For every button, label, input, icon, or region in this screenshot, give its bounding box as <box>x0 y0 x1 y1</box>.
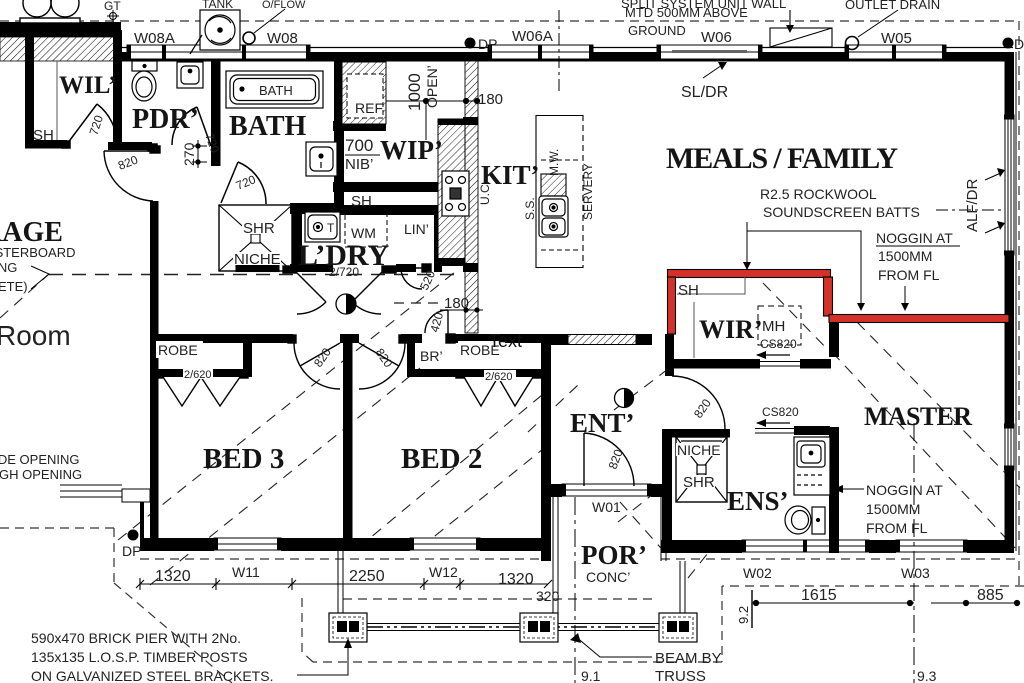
svg-text:135x135 L.O.S.P. TIMBER POS: 135x135 L.O.S.P. TIMBER POSTS <box>31 649 248 665</box>
svg-text:ON GALVANIZED STEEL BRACKET: ON GALVANIZED STEEL BRACKETS. <box>31 668 273 683</box>
svg-text:DP: DP <box>122 543 141 559</box>
svg-text:700: 700 <box>345 136 373 155</box>
svg-text:W08A: W08A <box>134 30 175 47</box>
svg-text:O/FLOW: O/FLOW <box>262 0 306 11</box>
svg-text:1000: 1000 <box>405 73 424 111</box>
svg-text:9.2: 9.2 <box>736 606 751 624</box>
svg-text:1615: 1615 <box>801 587 837 604</box>
svg-text:FROM FL: FROM FL <box>866 520 928 536</box>
svg-text:9.1: 9.1 <box>581 668 601 683</box>
svg-text:MASTER: MASTER <box>864 402 972 431</box>
svg-text:M.W.: M.W. <box>547 149 561 176</box>
svg-text:SHR: SHR <box>683 474 715 491</box>
svg-text:GARAGE: GARAGE <box>0 217 63 248</box>
svg-text:885: 885 <box>977 587 1004 604</box>
svg-text:PDR’: PDR’ <box>132 104 199 135</box>
svg-text:R2.5 ROCKWOOL: R2.5 ROCKWOOL <box>760 186 877 202</box>
svg-text:BED 3: BED 3 <box>203 443 284 475</box>
svg-text:WIL’: WIL’ <box>59 72 116 99</box>
svg-text:LIN’: LIN’ <box>404 221 429 237</box>
svg-text:W08: W08 <box>267 30 298 47</box>
svg-text:BED 2: BED 2 <box>401 443 482 475</box>
svg-text:BR’: BR’ <box>420 348 443 364</box>
svg-text:1320: 1320 <box>155 568 191 585</box>
svg-text:CONC’: CONC’ <box>586 569 630 585</box>
svg-text:W01: W01 <box>592 499 621 515</box>
svg-text:GROUND: GROUND <box>628 23 686 38</box>
svg-text:180: 180 <box>478 91 503 108</box>
svg-text:CS820: CS820 <box>760 337 797 351</box>
svg-text:WM: WM <box>351 225 376 241</box>
svg-text:CS820: CS820 <box>762 405 799 419</box>
svg-text:2/620: 2/620 <box>485 371 513 383</box>
svg-text:BATH: BATH <box>229 111 306 142</box>
svg-text:W05: W05 <box>881 30 912 47</box>
svg-text:REF: REF <box>355 100 383 116</box>
svg-text:TRUSS: TRUSS <box>655 668 706 683</box>
svg-text:NOGGIN AT: NOGGIN AT <box>876 230 953 246</box>
svg-text:TANK: TANK <box>202 0 233 11</box>
svg-text:ENT’: ENT’ <box>570 408 635 438</box>
svg-text:(CONCRETE): (CONCRETE) <box>0 279 28 294</box>
svg-text:LINING: LINING <box>0 260 17 275</box>
svg-text:180: 180 <box>444 295 469 312</box>
svg-text:2/720: 2/720 <box>329 265 359 279</box>
svg-text:W06: W06 <box>701 29 732 46</box>
svg-text:SH: SH <box>678 282 699 299</box>
svg-text:ENS’: ENS’ <box>727 486 789 516</box>
svg-text:2/620: 2/620 <box>184 369 212 381</box>
svg-text:MH: MH <box>762 318 785 335</box>
svg-text:U.C.: U.C. <box>478 181 492 205</box>
svg-text:SH: SH <box>351 193 372 210</box>
svg-text:NIB’: NIB’ <box>345 156 373 173</box>
svg-text:FROM FL: FROM FL <box>878 267 940 283</box>
svg-text:SL/DR: SL/DR <box>681 84 728 101</box>
svg-text:Text: Text <box>489 331 522 351</box>
svg-text:1320: 1320 <box>498 571 534 588</box>
svg-text:POR’: POR’ <box>581 540 647 570</box>
svg-text:BATH: BATH <box>259 83 293 98</box>
svg-text:OUTLET DRAIN: OUTLET DRAIN <box>845 0 940 12</box>
svg-text:MEALS / FAMILY: MEALS / FAMILY <box>666 142 898 175</box>
svg-text:NICHE: NICHE <box>677 442 721 458</box>
svg-text:1500MM: 1500MM <box>878 248 932 264</box>
svg-text:W12: W12 <box>429 564 458 580</box>
svg-text:SERVERY: SERVERY <box>581 163 595 220</box>
svg-text:DP: DP <box>478 36 497 52</box>
svg-text:DP: DP <box>1014 36 1024 52</box>
svg-text:SOUNDSCREEN BATTS: SOUNDSCREEN BATTS <box>763 204 920 220</box>
svg-text:270: 270 <box>181 142 197 166</box>
svg-text:BEAM BY: BEAM BY <box>655 650 722 667</box>
svg-text:T: T <box>327 221 335 235</box>
svg-text:WIR’: WIR’ <box>699 315 763 344</box>
svg-text:W02: W02 <box>743 565 772 581</box>
svg-text:GT: GT <box>104 0 121 13</box>
svg-text:SHR: SHR <box>243 220 275 237</box>
svg-text:W11: W11 <box>232 564 260 580</box>
svg-text:2250: 2250 <box>349 568 385 585</box>
svg-text:9.3: 9.3 <box>917 668 937 683</box>
svg-text:320: 320 <box>536 588 560 604</box>
svg-text:W06A: W06A <box>512 28 553 45</box>
svg-text:PLASTERBOARD: PLASTERBOARD <box>0 245 75 260</box>
svg-text:WIP’: WIP’ <box>380 135 443 165</box>
svg-text:Room: Room <box>0 320 71 351</box>
svg-text:MTD 500MM ABOVE: MTD 500MM ABOVE <box>625 5 748 20</box>
svg-text:NOGGIN AT: NOGGIN AT <box>866 482 943 498</box>
svg-text:ALF/DR: ALF/DR <box>964 178 981 232</box>
svg-text:W03: W03 <box>901 565 930 581</box>
svg-text:SH: SH <box>33 127 54 144</box>
svg-text:NICHE: NICHE <box>234 251 281 268</box>
svg-text:ROBE: ROBE <box>158 342 198 358</box>
svg-text:OPEN’: OPEN’ <box>424 65 440 108</box>
svg-text:WIDE OPENING: WIDE OPENING <box>0 452 80 467</box>
svg-text:590x470 BRICK PIER WITH 2N: 590x470 BRICK PIER WITH 2No. <box>31 630 241 646</box>
svg-text:HIGH OPENING: HIGH OPENING <box>0 467 82 482</box>
svg-text:S.S.: S.S. <box>523 197 537 220</box>
svg-text:1500MM: 1500MM <box>866 501 920 517</box>
